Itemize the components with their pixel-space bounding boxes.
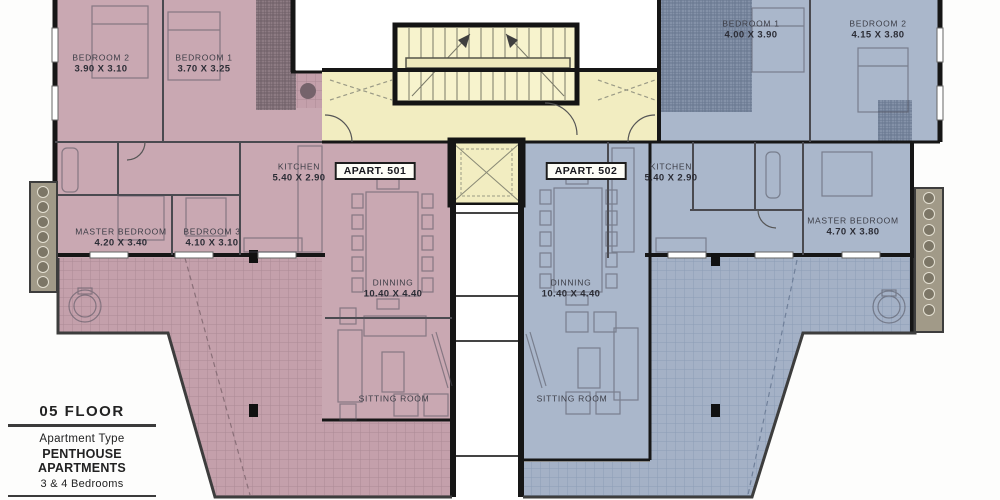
apartment-502-badge: APART. 502 [546,162,627,180]
elevator [450,140,523,205]
legend: 05 FLOOR Apartment Type PENTHOUSE APARTM… [6,403,158,500]
legend-divider-bottom [8,495,156,498]
apartment-501-badge: APART. 501 [335,162,416,180]
planter-left [30,182,57,292]
bathroom-tiles-502 [660,0,752,112]
floor-plan-page: BEDROOM 2 3.90 X 3.10 BEDROOM 1 3.70 X 3… [0,0,1000,500]
stairs [395,25,577,103]
shaft [455,205,520,500]
apartment-type-label: Apartment Type [6,433,158,445]
bathroom-tiles-501 [256,0,296,110]
bedrooms-count: 3 & 4 Bedrooms [6,478,158,490]
legend-divider-top [8,424,156,427]
planter-right [915,188,943,332]
apartment-type-value: PENTHOUSE APARTMENTS [6,447,158,475]
floor-title: 05 FLOOR [6,403,158,420]
